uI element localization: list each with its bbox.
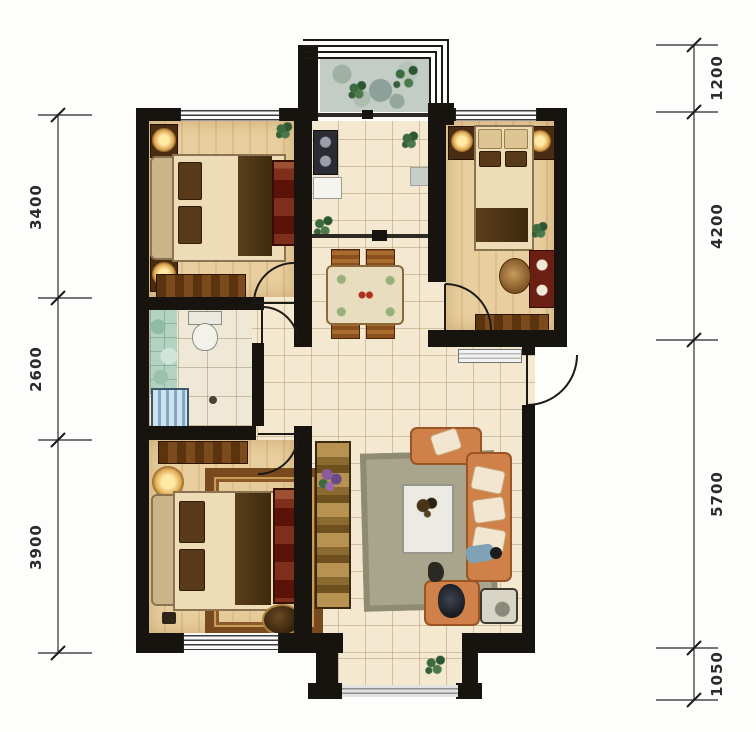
kitchen-corner-plant <box>402 131 419 149</box>
bedroom1-dresser <box>156 274 246 298</box>
bedroom3-bottom-wall <box>428 330 567 347</box>
balcony-plant-2 <box>348 80 368 100</box>
person-head <box>490 547 502 559</box>
bay-right-wall <box>462 653 478 685</box>
bedroom3-cushion-2 <box>505 151 527 167</box>
dining-table <box>326 265 404 325</box>
bedroom2-top-wall <box>136 426 256 440</box>
bedroom1-pillow-2 <box>178 206 202 244</box>
bathroom-right-wall <box>252 343 264 426</box>
entry-wall-lower <box>522 405 535 633</box>
toilet-bowl <box>192 323 218 351</box>
dim-right-1200: 1200 <box>708 43 726 113</box>
tv-cabinet-flowers <box>318 464 344 494</box>
bedroom2-pillow-1 <box>179 501 205 543</box>
bedroom3-desk <box>529 250 555 308</box>
bedroom3-plant <box>532 222 548 238</box>
bedroom3-chair <box>499 258 531 294</box>
bedroom1-pillow-1 <box>178 162 202 200</box>
bay-plant <box>424 654 448 676</box>
dim-left-3400: 3400 <box>27 172 45 242</box>
bag-on-armchair <box>438 584 465 618</box>
bay-bottom-left <box>308 683 342 699</box>
bedroom2-small-item <box>162 612 176 624</box>
bedroom3-window <box>455 108 537 121</box>
bathroom-top-wall <box>136 297 264 310</box>
bay-window <box>342 685 458 697</box>
bedroom2-right-wall <box>294 426 312 633</box>
coffee-table-flowers <box>412 496 440 520</box>
bedroom2-dresser <box>158 441 248 464</box>
stove <box>313 130 338 175</box>
wall-left-outer <box>136 108 149 653</box>
bedroom3-cushion-1 <box>479 151 501 167</box>
shower-tiles <box>150 310 177 394</box>
sofa-cushion-2 <box>471 496 506 524</box>
bedroom3-left-wall <box>428 121 446 282</box>
kitchen-dining-divider <box>312 234 428 238</box>
bedroom2-window <box>183 633 279 653</box>
bedroom1-plant <box>276 122 293 139</box>
bedroom2-blanket <box>235 493 271 605</box>
bedroom3-lamp-left <box>451 130 473 152</box>
dim-right-1050: 1050 <box>708 639 726 709</box>
side-table-lamp <box>480 588 518 624</box>
outside-mask <box>535 347 565 653</box>
dim-left-2600: 2600 <box>27 334 45 404</box>
bedroom3-blanket <box>476 208 528 242</box>
entry-wall-stub <box>522 347 535 355</box>
balcony-plant <box>390 62 424 92</box>
dark-decor-item <box>428 562 444 582</box>
floor-drain <box>209 396 217 404</box>
bay-left-wall <box>316 650 338 685</box>
entry-mat <box>458 349 522 363</box>
bedroom2-pillow-2 <box>179 549 205 591</box>
kitchen-sink-counter <box>313 177 342 199</box>
wall-right-outer <box>554 108 567 347</box>
bottom-wall-right <box>462 633 535 653</box>
washing-machine <box>151 388 189 429</box>
dim-right-4200: 4200 <box>708 191 726 261</box>
balcony-slider-handle <box>362 110 373 119</box>
balcony-slider-right <box>372 113 428 117</box>
bedroom3-pillow-2 <box>504 129 528 149</box>
bedroom1-blanket <box>238 156 272 256</box>
bay-bottom-right <box>456 683 482 699</box>
divider-stub <box>372 230 387 241</box>
wall-bedroom1-right <box>294 108 312 347</box>
bedroom3-pillow-1 <box>478 129 502 149</box>
dim-left-3900: 3900 <box>27 512 45 582</box>
balcony-slider-left <box>318 113 364 117</box>
bedroom1-window <box>180 108 280 121</box>
bedroom1-lamp-top <box>152 128 176 152</box>
dim-right-5700: 5700 <box>708 459 726 529</box>
floor-plan: 3400 2600 3900 1200 4200 5700 1050 <box>0 0 756 732</box>
